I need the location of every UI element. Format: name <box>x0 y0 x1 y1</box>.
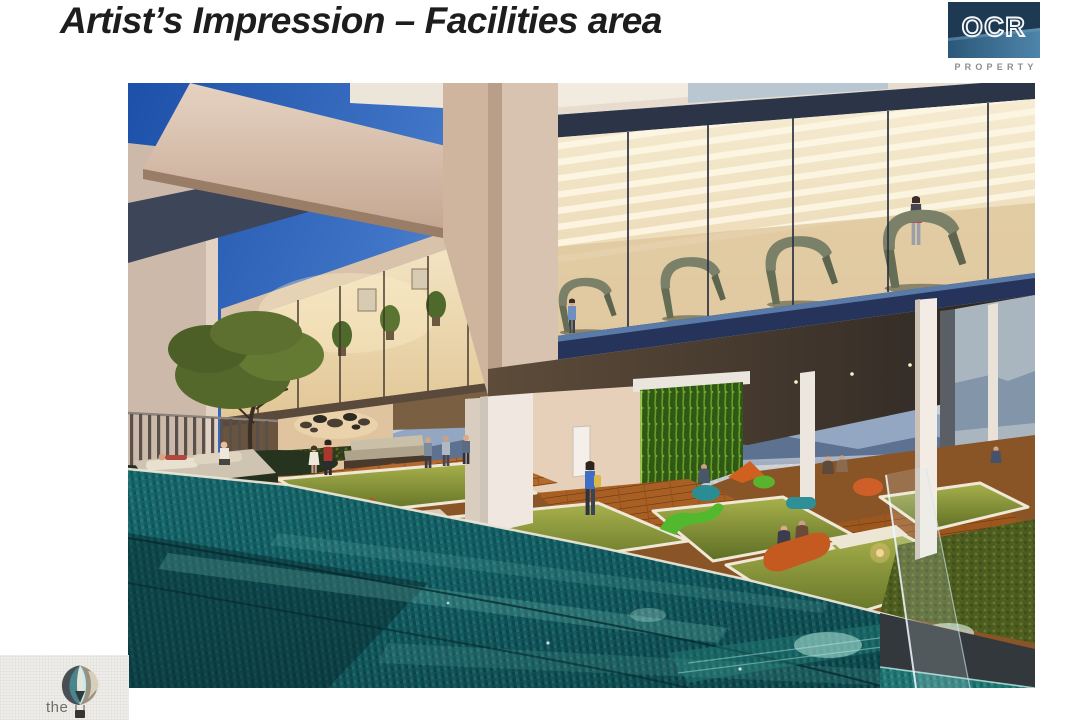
orange-bean-bag <box>853 478 883 496</box>
ocr-tagline: PROPERTY <box>948 62 1040 72</box>
slide-title: Artist’s Impression – Facilities area <box>60 0 662 42</box>
teal-ottoman <box>786 497 816 509</box>
building-pillar-shade <box>488 83 502 413</box>
balloon-logo: the <box>0 655 129 720</box>
ocr-property-logo: OCR PROPERTY <box>948 2 1040 72</box>
ocr-acronym: OCR <box>962 12 1027 42</box>
slide: Artist’s Impression – Facilities area OC… <box>0 0 1080 720</box>
ocr-badge-icon: OCR <box>948 2 1040 58</box>
teal-bean-bag <box>692 485 720 501</box>
balloon-logo-word: the <box>46 699 68 716</box>
facilities-rendering <box>128 83 1035 688</box>
facilities-render-svg <box>128 83 1035 688</box>
green-bean-bag <box>753 476 775 489</box>
